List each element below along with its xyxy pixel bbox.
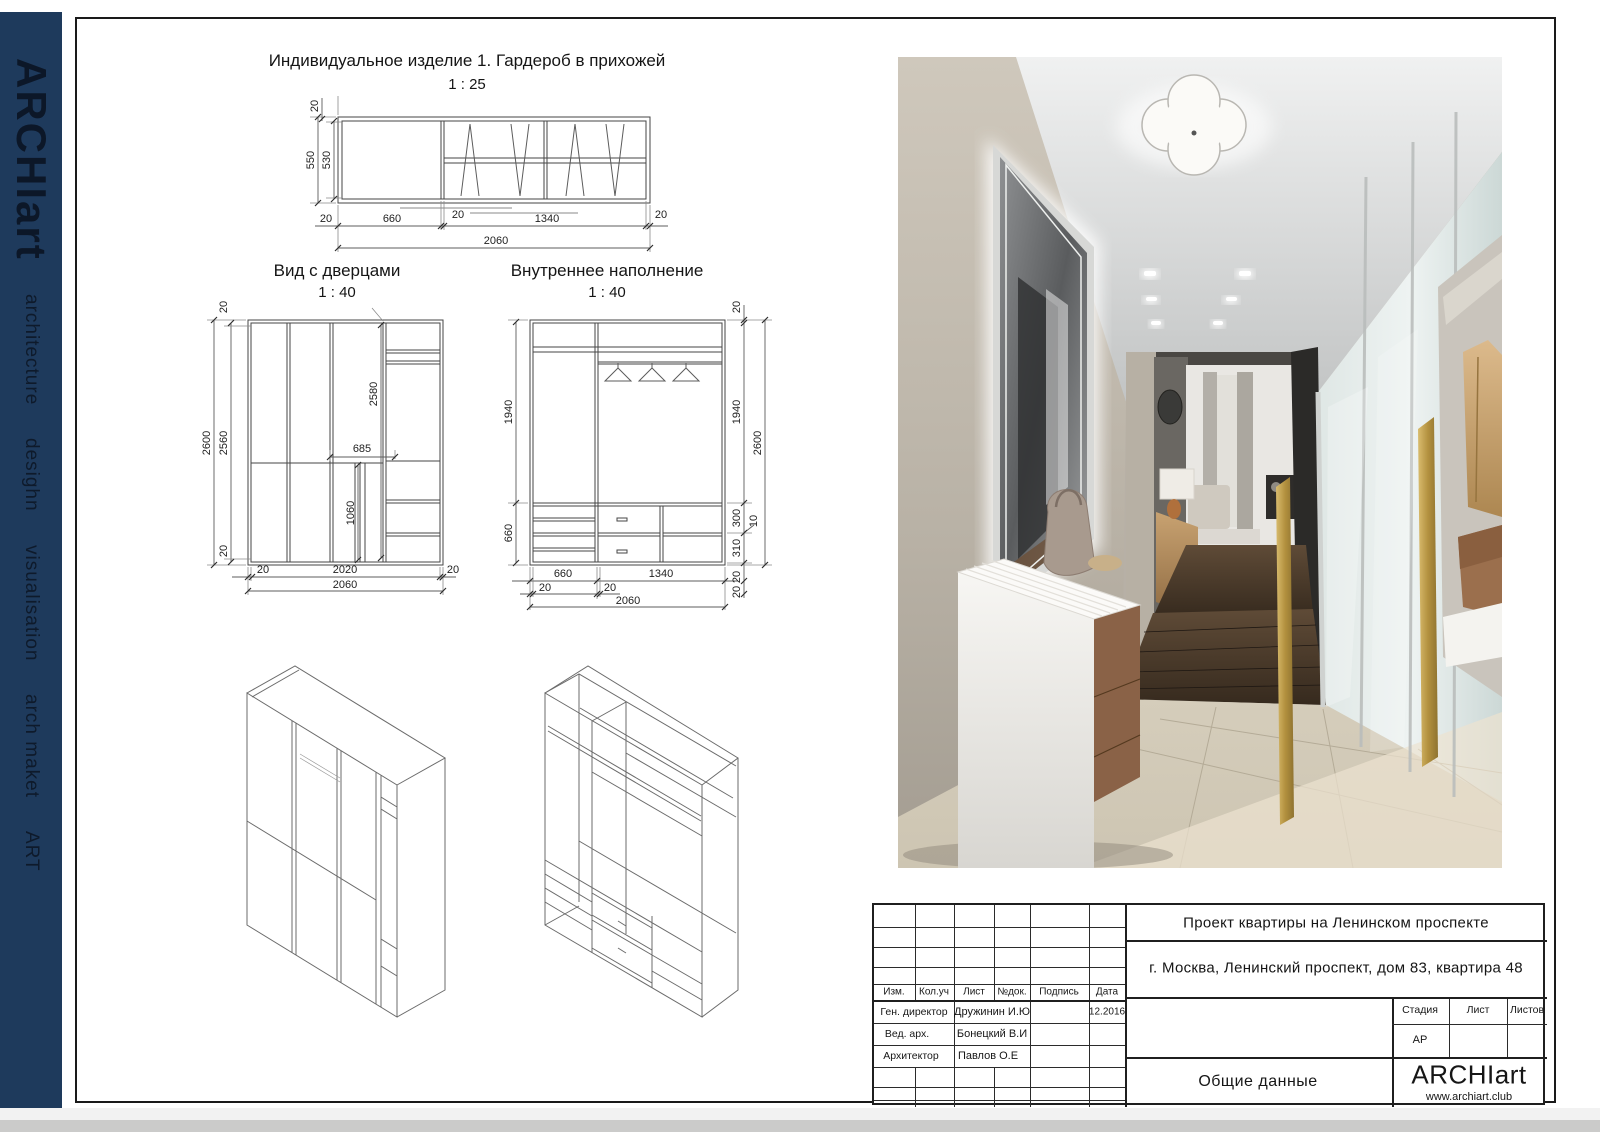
sidebar-item-design: desighn bbox=[21, 438, 42, 512]
col-izm: Изм. bbox=[883, 987, 904, 998]
titleblock-brand: ARCHIart bbox=[1411, 1060, 1526, 1091]
sidebar-item-art: ART bbox=[21, 831, 42, 872]
sheet-label: Лист bbox=[1467, 1004, 1490, 1016]
name-bonetskiy: Бонецкий В.И bbox=[957, 1028, 1027, 1040]
sheets-label: Листов bbox=[1510, 1004, 1544, 1016]
role-ved-arch: Вед. арх. bbox=[885, 1028, 929, 1040]
name-pavlov: Павлов О.Е bbox=[958, 1050, 1018, 1062]
sheet-bottom-margin bbox=[0, 1108, 1600, 1120]
mirror-reflection-light bbox=[1046, 289, 1068, 505]
stage-value: АР bbox=[1413, 1034, 1428, 1046]
role-gen-director: Ген. директор bbox=[880, 1006, 947, 1018]
col-list: Лист bbox=[963, 987, 985, 998]
name-druzhinin: Дружинин И.Ю bbox=[954, 1006, 1030, 1018]
scarf bbox=[1088, 555, 1122, 571]
lamp-finial bbox=[1192, 131, 1197, 136]
brand-logo-text: ARCHIart bbox=[8, 58, 55, 261]
col-data: Дата bbox=[1096, 987, 1118, 998]
project-address: г. Москва, Ленинский проспект, дом 83, к… bbox=[1149, 960, 1523, 977]
titleblock-site: www.archiart.club bbox=[1426, 1091, 1512, 1103]
copper-vase bbox=[1167, 499, 1181, 519]
hallway-render bbox=[898, 57, 1502, 868]
stage-label: Стадия bbox=[1402, 1004, 1438, 1016]
sidebar-vertical-text: ARCHIartarchitecturedesighnvisualisation… bbox=[0, 12, 62, 1108]
col-ndok: №док. bbox=[997, 987, 1026, 998]
sidebar-item-visualisation: visualisation bbox=[21, 545, 42, 662]
bench-front bbox=[958, 572, 1094, 868]
project-title: Проект квартиры на Ленинском проспекте bbox=[1183, 915, 1489, 932]
table-lamp-shade bbox=[1160, 469, 1194, 499]
wood-floor-near bbox=[1120, 609, 1326, 705]
taskbar-edge bbox=[0, 1120, 1600, 1132]
col-koluch: Кол.уч bbox=[919, 987, 949, 998]
tan-coat bbox=[1463, 340, 1502, 517]
doc-title: Общие данные bbox=[1198, 1073, 1317, 1091]
sidebar-item-architecture: architecture bbox=[21, 294, 42, 405]
date-value: 12.2016 bbox=[1089, 1007, 1125, 1018]
round-mirror bbox=[1158, 390, 1182, 424]
bench-wood-drawers bbox=[1094, 605, 1140, 802]
title-block: Изм. Кол.уч Лист №док. Подпись Дата Ген.… bbox=[872, 903, 1545, 1105]
sidebar-item-arch-maket: arch maket bbox=[21, 694, 42, 798]
curtain-right bbox=[1237, 372, 1253, 532]
role-architect: Архитектор bbox=[883, 1050, 938, 1062]
drawing-sheet: ARCHIartarchitecturedesighnvisualisation… bbox=[0, 0, 1600, 1132]
brand-sidebar: ARCHIartarchitecturedesighnvisualisation… bbox=[0, 12, 62, 1108]
col-podpis: Подпись bbox=[1039, 987, 1079, 998]
interior-render-photo bbox=[898, 57, 1502, 868]
